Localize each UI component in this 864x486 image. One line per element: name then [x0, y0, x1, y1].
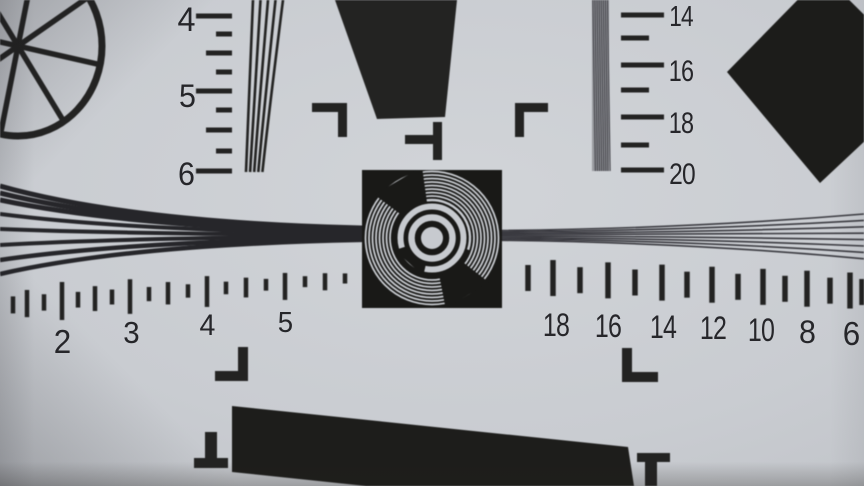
right-scale-label-18: 18	[669, 109, 693, 139]
left-scale-label-6: 6	[178, 158, 194, 190]
left-scale-label-4: 4	[177, 3, 194, 37]
bottom-right-label-8: 8	[799, 316, 815, 348]
bottom-left-label-2: 2	[54, 325, 70, 358]
resolution-test-chart-photo: 456141618202345181614121086	[0, 0, 864, 486]
scale-labels: 456141618202345181614121086	[0, 0, 864, 486]
right-scale-label-20: 20	[669, 160, 695, 190]
bottom-right-label-6: 6	[843, 317, 859, 350]
bottom-right-label-10: 10	[748, 314, 774, 346]
bottom-right-label-16: 16	[595, 310, 621, 342]
bottom-right-label-18: 18	[543, 309, 569, 341]
right-scale-label-16: 16	[669, 57, 693, 87]
bottom-right-label-14: 14	[650, 311, 676, 343]
right-scale-label-14: 14	[669, 3, 693, 32]
bottom-right-label-12: 12	[700, 312, 726, 344]
bottom-left-label-3: 3	[123, 317, 138, 348]
left-scale-label-5: 5	[179, 80, 195, 112]
bottom-left-label-5: 5	[278, 309, 292, 338]
bottom-left-label-4: 4	[200, 311, 215, 341]
